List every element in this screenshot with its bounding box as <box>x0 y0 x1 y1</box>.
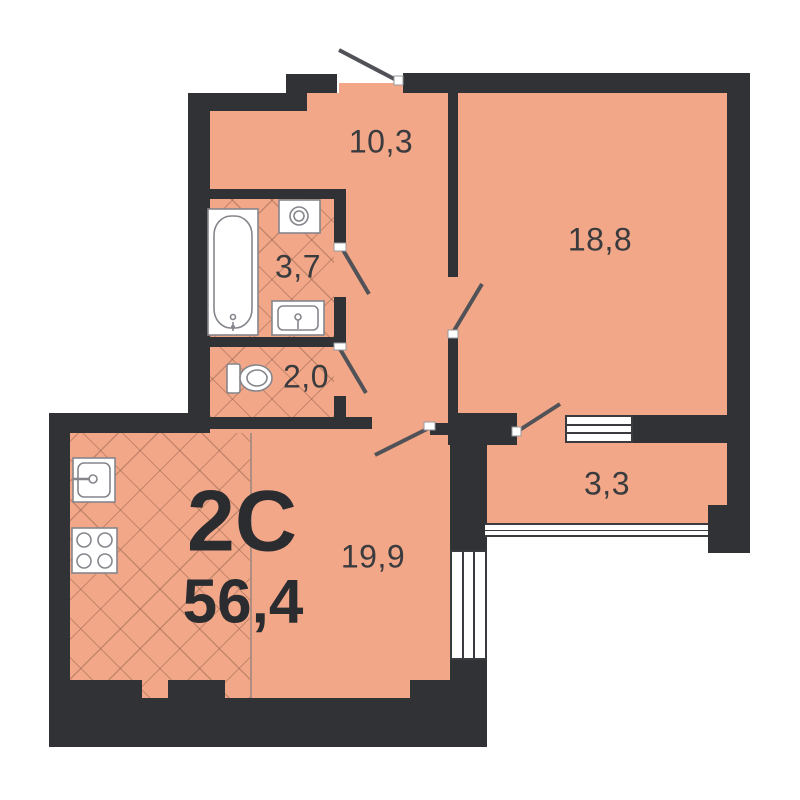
balcony-window-icon <box>565 415 633 443</box>
bathroom-area-label: 3,7 <box>275 249 321 286</box>
wall <box>168 680 225 747</box>
window-line <box>567 432 631 434</box>
window-line <box>567 424 631 426</box>
wall <box>410 680 450 747</box>
wall <box>633 415 727 443</box>
wall <box>49 680 142 747</box>
wall <box>450 660 487 747</box>
wall <box>448 413 517 445</box>
wall <box>225 698 410 747</box>
wall <box>708 505 750 553</box>
wall <box>142 698 168 747</box>
floor-entrance-threshold <box>339 83 403 95</box>
apartment-type-label: 2C <box>187 473 297 572</box>
wall <box>727 73 750 505</box>
wall <box>210 337 346 347</box>
total-area-label: 56,4 <box>183 567 304 638</box>
balcony-area-label: 3,3 <box>584 466 630 503</box>
wall <box>188 93 210 433</box>
wall <box>450 443 487 551</box>
wall <box>403 73 750 93</box>
room-window-icon <box>450 550 487 660</box>
balcony-glazing-icon <box>485 523 708 537</box>
living-room-area-label: 18,8 <box>568 222 632 259</box>
window-line <box>473 552 475 658</box>
wall <box>210 417 372 429</box>
window-line <box>485 530 708 532</box>
wall <box>210 189 346 199</box>
kitchen-living-area-label: 19,9 <box>341 539 405 576</box>
wall <box>448 93 458 277</box>
wall <box>286 74 337 93</box>
window-line <box>462 552 464 658</box>
floor-plan: 10,3 18,8 3,7 2,0 19,9 3,3 2C 56,4 <box>0 0 800 800</box>
wall <box>430 423 448 435</box>
wall <box>49 413 210 433</box>
wc-area-label: 2,0 <box>283 359 329 396</box>
wall <box>188 93 307 111</box>
wall <box>448 335 458 413</box>
entrance-door-icon <box>339 50 400 82</box>
hallway-area-label: 10,3 <box>349 124 413 161</box>
wall <box>334 199 346 245</box>
